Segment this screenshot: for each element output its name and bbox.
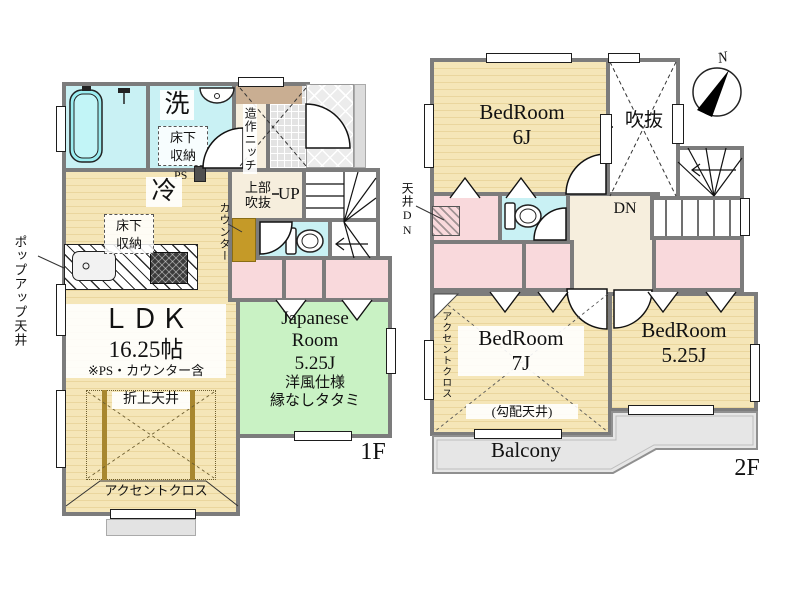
closet-2f-d [652, 236, 744, 292]
genkan-wood-step [236, 86, 302, 104]
underfloor-storage-ldk-label: 床下収納 [104, 214, 154, 254]
fridge-label: 冷 [146, 177, 182, 207]
laundry-label: 洗 [160, 90, 194, 120]
japanese-room-label: Japanese Room 5.25J 洋風仕様 縁なしタタミ [250, 308, 380, 411]
niche-label: 造作ニッチ [243, 104, 257, 174]
bedroom7-label: BedRoom 7J [458, 326, 584, 376]
window [56, 106, 66, 152]
room-bathroom [62, 82, 150, 172]
window [110, 509, 196, 519]
window [238, 77, 284, 87]
terrace-step [106, 519, 196, 536]
ldk-note: ※PS・カウンター含 [66, 363, 226, 378]
porch-step [354, 84, 366, 168]
coffered-ceiling-label: 折上天井 [112, 392, 190, 409]
window [750, 344, 760, 402]
ldk-name: ＬＤＫ [66, 304, 226, 336]
accent-cloth-2f-label: アクセントクロス [439, 300, 451, 410]
closet-2f-c [522, 240, 574, 292]
window [386, 328, 396, 374]
ceiling-down-label: 天井DN [400, 172, 414, 248]
closet-2f-b [430, 240, 526, 292]
popup-ceiling-label: ポップアップ天井 [12, 226, 27, 356]
window [424, 104, 434, 168]
accent-cloth-1f-label: アクセントクロス [96, 483, 216, 498]
window [424, 340, 434, 400]
counter-block [232, 218, 256, 262]
entrance-porch [306, 84, 354, 168]
stairs-2f-lower [650, 196, 744, 240]
toilet-room-2f [498, 192, 570, 244]
window [600, 114, 612, 164]
ceiling-beam-right [190, 390, 195, 480]
pipe-shaft-box [194, 166, 206, 182]
floor1-label: 1F [350, 438, 396, 466]
ldk-size: 16.25帖 [66, 336, 226, 363]
floorplan-canvas: 洗 床下収納 PS 冷 床下収納 ポップアップ天井 カウンター 造作ニッチ 上部… [0, 0, 800, 600]
counter-label: カウンター [217, 202, 230, 262]
closet-1f-b [282, 256, 326, 302]
bedroom525-label: BedRoom 5.25J [628, 318, 740, 368]
window [56, 284, 66, 336]
bedroom6-label: BedRoom 6J [462, 100, 582, 150]
ceiling-beam-left [102, 390, 107, 480]
window [56, 390, 66, 468]
balcony-label: Balcony [470, 438, 582, 463]
window [628, 405, 714, 415]
compass-icon [693, 68, 741, 117]
compass-north-label: N [716, 49, 729, 68]
underfloor-storage-label: 床下収納 [158, 126, 208, 166]
up-label: UP [278, 184, 300, 204]
ceiling-down-hatch [432, 206, 460, 236]
closet-1f-c [322, 256, 392, 302]
window [294, 431, 352, 441]
ldk-label: ＬＤＫ 16.25帖 ※PS・カウンター含 [66, 304, 226, 378]
void-label: 吹抜 [613, 110, 675, 132]
closet-1f-a [228, 256, 286, 302]
window [608, 53, 640, 63]
window [740, 198, 750, 236]
floor2-label: 2F [724, 454, 770, 482]
bedroom7-note: (勾配天井) [466, 404, 578, 419]
kitchen-stove-icon [150, 252, 188, 284]
kitchen-sink-icon [72, 251, 116, 281]
stairs-2f-upper [676, 146, 744, 200]
dn-label: DN [604, 200, 646, 219]
stairs-1f-upper [302, 168, 380, 222]
window [486, 53, 572, 63]
upper-void-label: 上部 吹抜 [242, 180, 274, 211]
